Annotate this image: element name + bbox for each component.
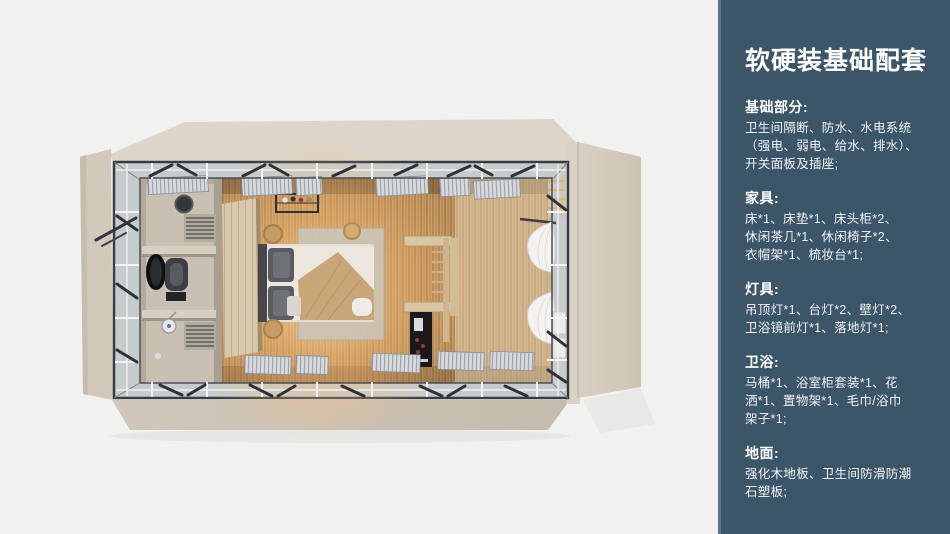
section-flooring-body: 强化木地板、卫生间防滑防潮 石塑板;: [745, 465, 938, 501]
bathroom: [140, 178, 222, 383]
sidebar-edge-highlight: [718, 0, 721, 534]
shell-right-door-panel: [578, 142, 641, 398]
divider-wall: [450, 238, 458, 316]
sidebar-title: 软硬装基础配套: [745, 46, 938, 76]
round-basin-sink: [148, 256, 164, 288]
basket: [306, 197, 312, 203]
section-lighting-body: 吊顶灯*1、台灯*2、壁灯*2、 卫浴镜前灯*1、落地灯*1;: [745, 301, 938, 337]
toilet: [176, 196, 193, 213]
dried-plant: [344, 223, 360, 239]
section-basics: 基础部分: 卫生间隔断、防水、水电系统 （强电、弱电、给水、排水）、 开关面板及…: [745, 99, 938, 173]
vanity-stool: [166, 292, 186, 301]
headboard-wall: [222, 198, 262, 358]
bottle: [290, 196, 295, 201]
section-lighting: 灯具: 吊顶灯*1、台灯*2、壁灯*2、 卫浴镜前灯*1、落地灯*1;: [745, 281, 938, 337]
section-flooring: 地面: 强化木地板、卫生间防滑防潮 石塑板;: [745, 445, 938, 501]
nightstand-basket: [264, 320, 282, 338]
section-furniture-label: 家具:: [745, 190, 938, 207]
foot-cushion: [352, 298, 372, 316]
bottle: [282, 197, 287, 202]
section-basics-body: 卫生间隔断、防水、水电系统 （强电、弱电、给水、排水）、 开关面板及插座;: [745, 119, 938, 173]
section-flooring-label: 地面:: [745, 445, 938, 462]
headboard: [258, 244, 267, 322]
section-sanitary-label: 卫浴:: [745, 354, 938, 371]
wall-cabinet: [553, 312, 566, 334]
section-sanitary-body: 马桶*1、浴室柜套装*1、花 洒*1、置物架*1、毛巾/浴巾 架子*1;: [745, 374, 938, 428]
section-sanitary: 卫浴: 马桶*1、浴室柜套装*1、花 洒*1、置物架*1、毛巾/浴巾 架子*1;: [745, 354, 938, 428]
section-lighting-label: 灯具:: [745, 281, 938, 298]
section-furniture: 家具: 床*1、床垫*1、床头柜*2、 休闲茶几*1、休闲椅子*2、 衣帽架*1…: [745, 190, 938, 264]
info-sidebar: 软硬装基础配套 基础部分: 卫生间隔断、防水、水电系统 （强电、弱电、给水、排水…: [718, 0, 950, 534]
towel-radiator-top: [184, 214, 216, 242]
accent-pillow: [287, 296, 301, 316]
page: 软硬装基础配套 基础部分: 卫生间隔断、防水、水电系统 （强电、弱电、给水、排水…: [0, 0, 950, 534]
bathroom-partition-wall: [214, 178, 222, 383]
bottle: [299, 198, 303, 202]
floorplan-render: [0, 0, 718, 534]
nightstand-basket: [264, 225, 282, 243]
section-basics-label: 基础部分:: [745, 99, 938, 116]
bathroom-divider-shelf: [142, 310, 216, 318]
floor-drain: [155, 353, 161, 359]
section-furniture-body: 床*1、床垫*1、床头柜*2、 休闲茶几*1、休闲椅子*2、 衣帽架*1、梳妆台…: [745, 210, 938, 264]
bathroom-divider-shelf: [142, 246, 216, 254]
towel-radiator-bottom: [184, 322, 216, 350]
